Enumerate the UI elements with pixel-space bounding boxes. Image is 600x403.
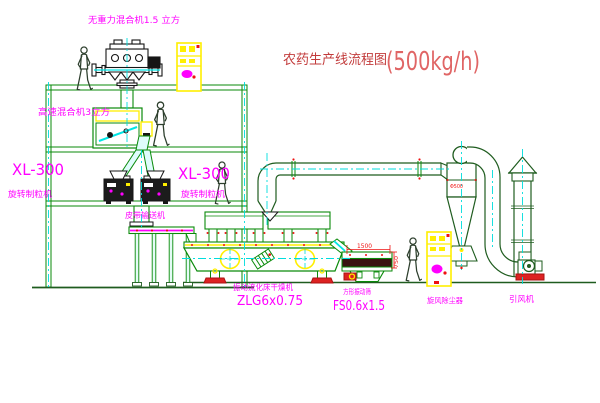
indicator-dot [197,45,200,48]
gravity-free-mixer [92,40,162,88]
diagram-capacity: (500kg/h) [386,47,480,77]
label-sieve-model: FS0.6x1.5 [333,299,385,314]
control-cabinet-top [177,43,201,91]
control-cabinet-right [427,232,451,286]
label-belt-conveyor: 皮带输送机 [125,210,165,220]
label-granulator-left-model: XL-300 [12,160,64,179]
label-sieve-name: 方形振动筛 [343,287,371,296]
label-high-speed-mixer: 高速混合机3立方 [38,106,110,118]
label-fan-name: 引风机 [509,294,534,305]
fluid-bed-dryer [184,212,344,283]
cabinet-marking [432,265,443,274]
worker-floor2 [154,102,169,146]
cad-flow-diagram: 农药生产线流程图 (500kg/h) 无重力混合机1.5 立方 高速混合机3立方… [0,0,600,403]
indicator-dot [447,234,450,237]
induced-draft-fan [516,252,544,280]
diagram-title: 农药生产线流程图 [283,52,387,68]
label-granulator-mid-model: XL-300 [178,164,230,183]
cabinet-marking [182,70,193,78]
label-granulator-left-name: 旋转制粒机 [8,189,53,200]
dim-sieve-height: 750 [394,255,400,268]
belt-conveyor [129,227,196,286]
worker-ground [406,238,421,281]
drawing-canvas: 农药生产线流程图 (500kg/h) 无重力混合机1.5 立方 高速混合机3立方… [0,0,600,403]
label-gravity-mixer: 无重力混合机1.5 立方 [88,14,180,26]
worker-roof [77,47,92,90]
air-stubs [207,229,329,242]
label-cyclone-size: Φ500 [450,184,463,190]
label-granulator-mid-name: 旋转制粒机 [181,189,226,200]
dim-sieve-width: 1500 [357,243,372,250]
vibration-spring-right [295,249,315,269]
exhaust-duct [258,158,441,212]
label-dryer-name: 振动流化床干燥机 [233,282,293,292]
label-cyclone-name: 旋风除尘器 [427,295,463,305]
label-dryer-model: ZLG6x0.75 [237,294,303,309]
vibration-spring-left [220,249,240,269]
